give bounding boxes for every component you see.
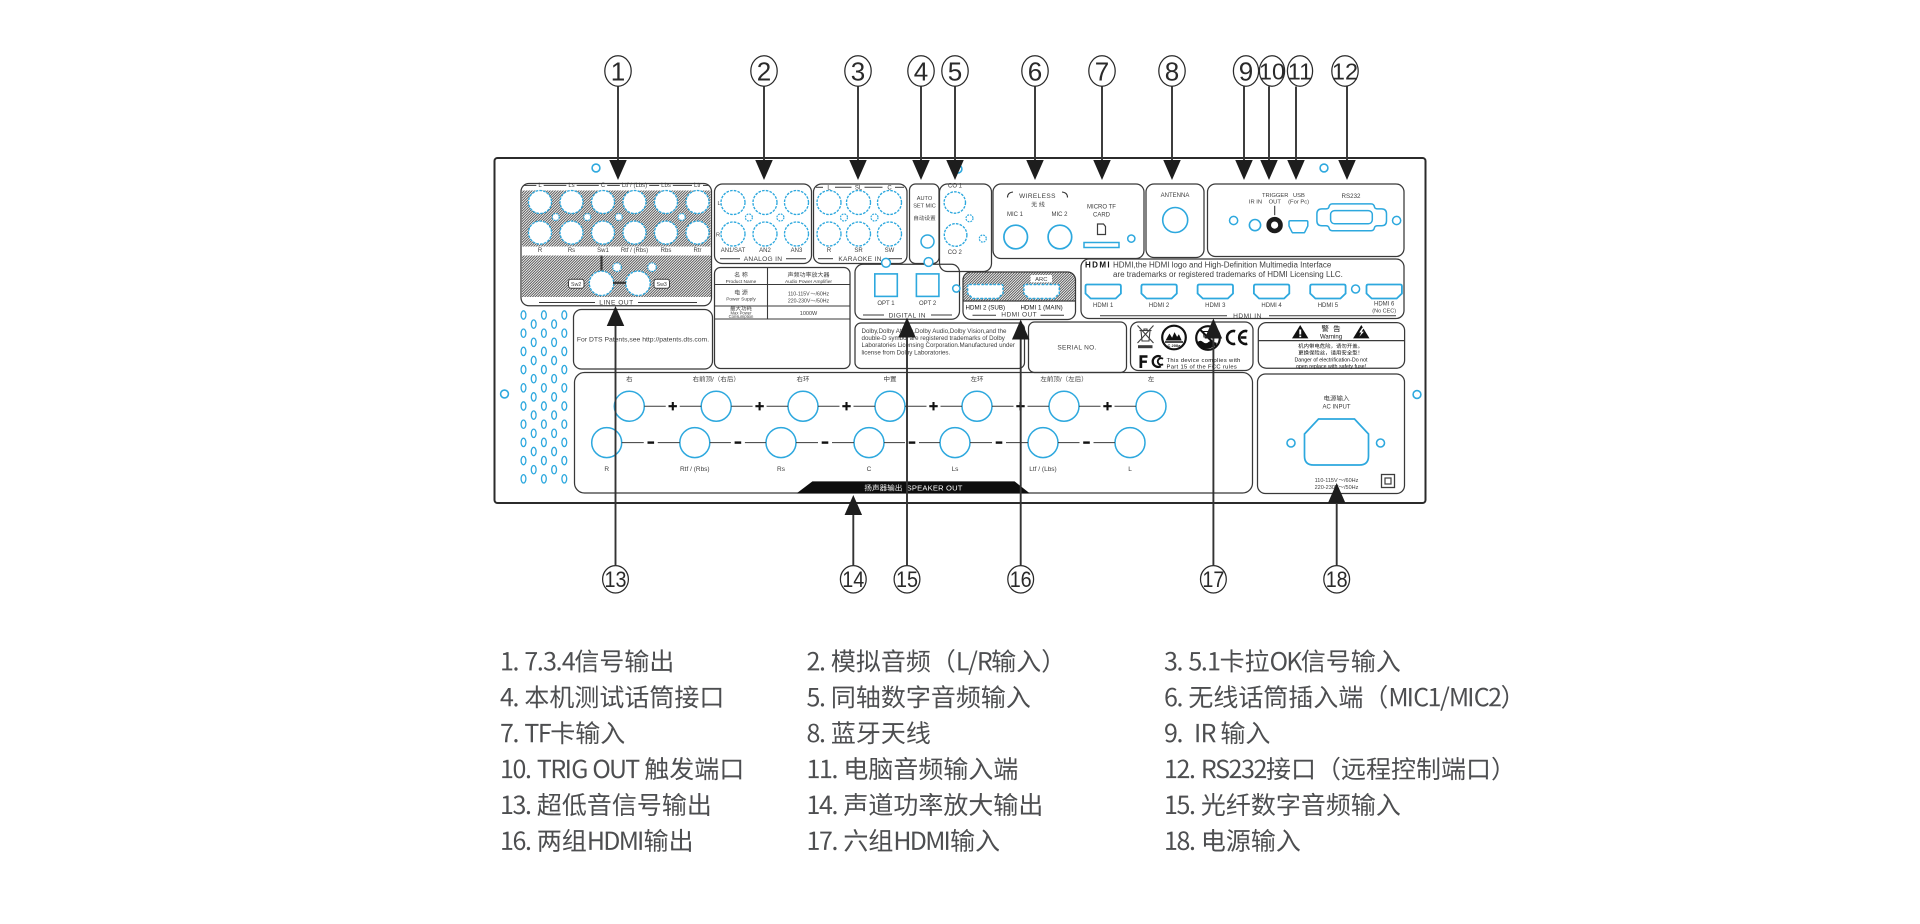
svg-text:Product Name: Product Name	[726, 279, 757, 285]
svg-text:Power Supply: Power Supply	[726, 297, 756, 303]
svg-text:USB: USB	[1293, 193, 1305, 199]
svg-text:Lbs: Lbs	[661, 183, 671, 189]
svg-text:Rbs: Rbs	[661, 248, 672, 254]
svg-text:C: C	[887, 186, 892, 192]
svg-text:5: 5	[948, 56, 962, 86]
svg-text:Danger of electrification-Do n: Danger of electrification-Do not	[1294, 358, 1368, 364]
svg-text:OPT 2: OPT 2	[919, 301, 937, 307]
svg-text:Ls: Ls	[568, 183, 574, 189]
svg-text:KARAOKE IN: KARAOKE IN	[838, 256, 881, 263]
svg-text:1: 1	[611, 56, 625, 86]
svg-text:OPT 1: OPT 1	[877, 301, 895, 307]
svg-text:IR IN: IR IN	[1249, 200, 1262, 206]
svg-text:SW: SW	[885, 248, 895, 254]
svg-text:AN3: AN3	[791, 248, 803, 254]
svg-text:SET MIC: SET MIC	[913, 204, 936, 210]
svg-text:/60Hz: /60Hz	[1344, 478, 1359, 484]
svg-text:18: 18	[1326, 567, 1348, 592]
svg-text:open replace with safety fuse!: open replace with safety fuse!	[1296, 364, 1366, 370]
svg-text:LINE OUT: LINE OUT	[599, 299, 633, 306]
svg-text:17: 17	[1202, 567, 1224, 592]
svg-text:4: 4	[914, 56, 928, 86]
svg-text:(For Pc): (For Pc)	[1288, 200, 1309, 206]
svg-text:Sw2: Sw2	[571, 282, 581, 288]
svg-text:Rtr: Rtr	[694, 248, 702, 254]
svg-text:AC INPUT: AC INPUT	[1322, 404, 1350, 410]
svg-text:ANTENNA: ANTENNA	[1161, 193, 1190, 199]
svg-text:ANALOG IN: ANALOG IN	[744, 256, 783, 263]
svg-text:C: C	[601, 183, 606, 189]
svg-text:13: 13	[605, 567, 627, 592]
svg-text:Ltf / (Lbs): Ltf / (Lbs)	[622, 183, 647, 189]
svg-text:/: /	[712, 376, 714, 383]
svg-text:7: 7	[1095, 56, 1109, 86]
svg-text:10: 10	[1259, 58, 1285, 84]
svg-text:OUT: OUT	[1269, 200, 1282, 206]
svg-text:Ls: Ls	[952, 466, 960, 473]
svg-text:MICRO TF: MICRO TF	[1087, 205, 1116, 211]
svg-text:R: R	[538, 248, 543, 254]
svg-text:HDMI 6: HDMI 6	[1374, 302, 1395, 308]
svg-text:HDMI 2 (SUB): HDMI 2 (SUB)	[966, 304, 1006, 311]
svg-text:HDMI 1 (MAIN): HDMI 1 (MAIN)	[1020, 304, 1062, 311]
svg-text:SPEAKER: SPEAKER	[907, 484, 945, 493]
svg-text:ARC: ARC	[1035, 277, 1047, 283]
svg-text:L: L	[717, 201, 720, 207]
svg-text:TRIGGER: TRIGGER	[1262, 193, 1288, 199]
svg-text:Warning: Warning	[1320, 334, 1342, 340]
svg-text:(No CEC): (No CEC)	[1372, 309, 1396, 315]
svg-text:1000W: 1000W	[800, 311, 818, 317]
svg-text:C 20lla: C 20lla	[1168, 343, 1182, 348]
svg-text:CARD: CARD	[1093, 212, 1111, 218]
svg-text:9: 9	[1239, 56, 1253, 86]
svg-text:Rtf / (Rbs): Rtf / (Rbs)	[680, 466, 710, 473]
svg-text:110-115V: 110-115V	[788, 292, 810, 298]
svg-text:CO 2: CO 2	[948, 250, 963, 256]
svg-text:Consumption: Consumption	[729, 314, 754, 319]
svg-text:12: 12	[1332, 58, 1358, 84]
svg-text:Part 15 of the FCC rules: Part 15 of the FCC rules	[1167, 364, 1238, 370]
svg-text:OUT: OUT	[946, 484, 963, 493]
svg-text:Rs: Rs	[777, 466, 786, 473]
svg-text:HDMI: HDMI	[1085, 261, 1111, 270]
svg-text:This device complies with: This device complies with	[1167, 358, 1241, 364]
svg-text:RS232: RS232	[1342, 193, 1361, 200]
svg-text:/: /	[1060, 376, 1062, 383]
svg-text:Audio Power Amplifier: Audio Power Amplifier	[785, 279, 832, 285]
svg-text:16: 16	[1010, 567, 1032, 592]
svg-text:HDMI 3: HDMI 3	[1205, 303, 1226, 309]
svg-text:Sw3: Sw3	[657, 282, 667, 288]
svg-text:Dolby,Dolby Atmos,Dolby Audio,: Dolby,Dolby Atmos,Dolby Audio,Dolby Visi…	[862, 328, 1007, 335]
svg-text:2: 2	[757, 56, 771, 86]
svg-text:/50Hz: /50Hz	[816, 299, 830, 305]
svg-text:MIC 2: MIC 2	[1051, 212, 1068, 218]
svg-text:are trademarks or registered t: are trademarks or registered trademarks …	[1113, 270, 1343, 279]
svg-text:HDMI 2: HDMI 2	[1149, 303, 1170, 309]
svg-text:AN1/SAT: AN1/SAT	[721, 248, 746, 254]
svg-text:/60Hz: /60Hz	[816, 292, 830, 298]
svg-text:CO 1: CO 1	[948, 184, 963, 190]
svg-text:SR: SR	[854, 248, 863, 254]
svg-text:WIRELESS: WIRELESS	[1019, 193, 1056, 200]
svg-text:110-115V: 110-115V	[1315, 478, 1338, 484]
svg-text:6: 6	[1028, 56, 1042, 86]
svg-text:8: 8	[1165, 56, 1179, 86]
svg-text:R: R	[827, 248, 832, 254]
svg-text:For DTS Patents,see http://pat: For DTS Patents,see http://patents.dts.c…	[577, 337, 709, 344]
svg-text:Rtf / (Rbs): Rtf / (Rbs)	[621, 248, 648, 254]
svg-text:C: C	[867, 466, 872, 473]
svg-text:Sw1: Sw1	[597, 248, 609, 254]
svg-text:HDMI 5: HDMI 5	[1318, 303, 1339, 309]
svg-text:14: 14	[842, 567, 864, 592]
svg-text:double-D symbol are registered: double-D symbol are registered trademark…	[862, 335, 1006, 342]
svg-text:220-230V: 220-230V	[788, 299, 811, 305]
svg-text:Ltr: Ltr	[694, 183, 701, 189]
svg-text:license from Dolby Laboratorie: license from Dolby Laboratories.	[862, 349, 951, 356]
svg-text:Laboratories Licensing Corpora: Laboratories Licensing Corporation.Manuf…	[862, 342, 1015, 349]
svg-text:HDMI IN: HDMI IN	[1233, 313, 1262, 320]
svg-text:HDMI OUT: HDMI OUT	[1001, 312, 1037, 319]
svg-text:R: R	[716, 233, 720, 239]
svg-text:SL: SL	[855, 186, 863, 192]
svg-text:Ltf / (Lbs): Ltf / (Lbs)	[1029, 466, 1056, 473]
svg-text:/50Hz: /50Hz	[1344, 485, 1359, 491]
svg-text:HDMI,the HDMI logo and High-De: HDMI,the HDMI logo and High-Definition M…	[1113, 261, 1332, 270]
svg-text:3: 3	[851, 56, 865, 86]
svg-text:Rs: Rs	[568, 248, 575, 254]
svg-text:L: L	[1128, 466, 1132, 473]
svg-text:HDMI 4: HDMI 4	[1261, 303, 1282, 309]
svg-text:SERIAL NO.: SERIAL NO.	[1057, 345, 1096, 352]
svg-text:15: 15	[896, 567, 918, 592]
svg-text:11: 11	[1288, 58, 1312, 84]
svg-text:MIC 1: MIC 1	[1007, 212, 1024, 218]
svg-text:AUTO: AUTO	[917, 196, 933, 202]
svg-text:HDMI 1: HDMI 1	[1093, 303, 1114, 309]
svg-text:AN2: AN2	[759, 248, 771, 254]
svg-text:R: R	[604, 466, 609, 473]
